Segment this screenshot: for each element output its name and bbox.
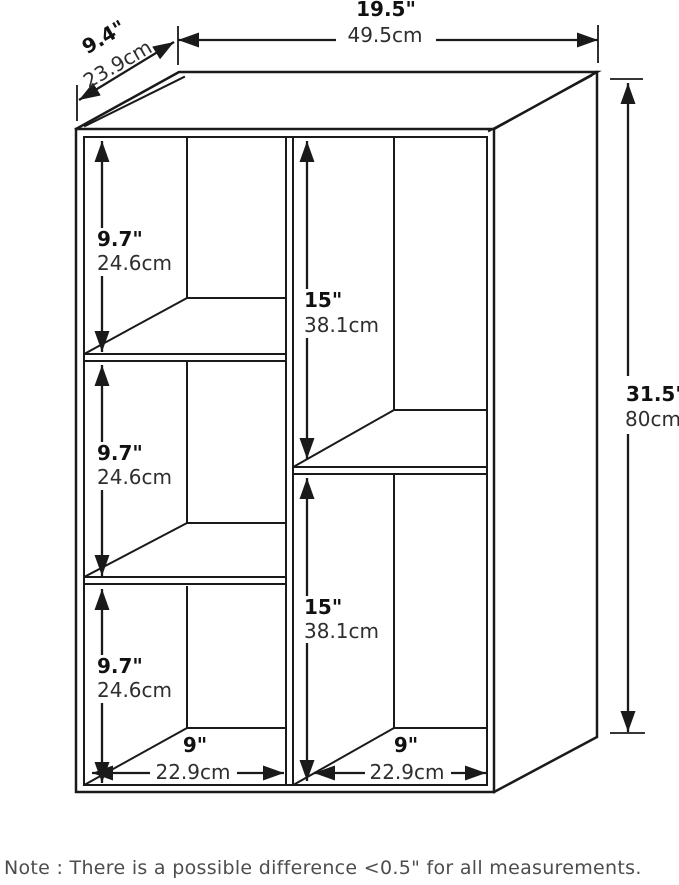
overall-height-inches-label: 31.5" (626, 382, 679, 406)
left-compartment-width-inches-label: 9" (183, 733, 207, 757)
dimension-labels: 19.5" 49.5cm 9.4" 23.9cm 31.5" 80cm 9.7"… (78, 0, 679, 784)
right-compartment-1-height-inches-label: 15" (304, 288, 342, 312)
right-compartment-2-height-inches-label: 15" (304, 595, 342, 619)
left-compartment-3-height-cm-label: 24.6cm (97, 678, 172, 702)
right-compartment-1-height-cm-label: 38.1cm (304, 313, 379, 337)
left-compartment-3-height-inches-label: 9.7" (97, 654, 143, 678)
bookcase-dimension-diagram: 19.5" 49.5cm 9.4" 23.9cm 31.5" 80cm 9.7"… (0, 0, 679, 885)
measurement-tolerance-note: Note : There is a possible difference <0… (4, 857, 642, 879)
dimension-diagram-canvas: 19.5" 49.5cm 9.4" 23.9cm 31.5" 80cm 9.7"… (0, 0, 679, 885)
left-compartment-1-height-inches-label: 9.7" (97, 227, 143, 251)
left-compartment-width-cm-label: 22.9cm (155, 760, 230, 784)
right-compartment-width-cm-label: 22.9cm (369, 760, 444, 784)
overall-height-cm-label: 80cm (625, 407, 679, 431)
overall-width-cm-label: 49.5cm (347, 23, 422, 47)
left-compartment-2-height-inches-label: 9.7" (97, 441, 143, 465)
left-compartment-2-height-cm-label: 24.6cm (97, 465, 172, 489)
right-compartment-width-inches-label: 9" (394, 733, 418, 757)
overall-width-inches-label: 19.5" (356, 0, 416, 21)
right-compartment-2-height-cm-label: 38.1cm (304, 619, 379, 643)
left-compartment-1-height-cm-label: 24.6cm (97, 251, 172, 275)
